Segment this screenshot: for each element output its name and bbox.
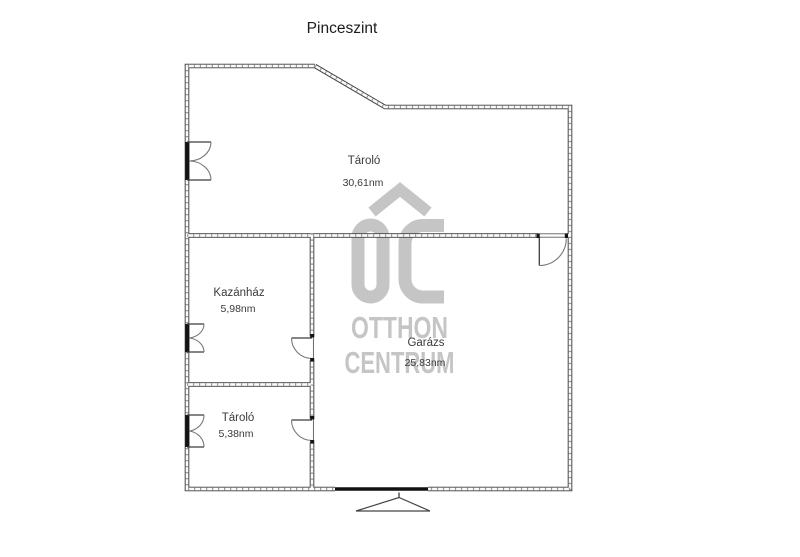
room-area-tarolo-upper: 30,61nm [343, 177, 384, 189]
door-icon [292, 334, 315, 362]
room-area-kazanhaz: 5,98nm [220, 303, 255, 315]
logo-roof-chevron-icon [372, 190, 428, 213]
room-label-kazanhaz: Kazánház [213, 287, 264, 299]
room-label-tarolo-upper: Tároló [348, 155, 381, 167]
room-label-tarolo-lower: Tároló [222, 412, 255, 424]
door-icon [292, 416, 315, 444]
page-title: Pinceszint [307, 20, 378, 37]
otthon-centrum-logo: OTTHON CENTRUM [345, 190, 455, 381]
room-area-tarolo-lower: 5,38nm [218, 428, 253, 440]
window-icon [185, 142, 211, 180]
floor-plan-page: OTTHON CENTRUM [0, 0, 800, 557]
entrance-arrow-icon [356, 493, 430, 512]
room-label-garazs: Garázs [407, 337, 444, 349]
window-icon [185, 415, 204, 447]
room-area-garazs: 25,83nm [405, 357, 446, 369]
door-icon [537, 234, 569, 266]
floor-plan-canvas: OTTHON CENTRUM [0, 0, 800, 557]
window-icon [185, 324, 204, 352]
